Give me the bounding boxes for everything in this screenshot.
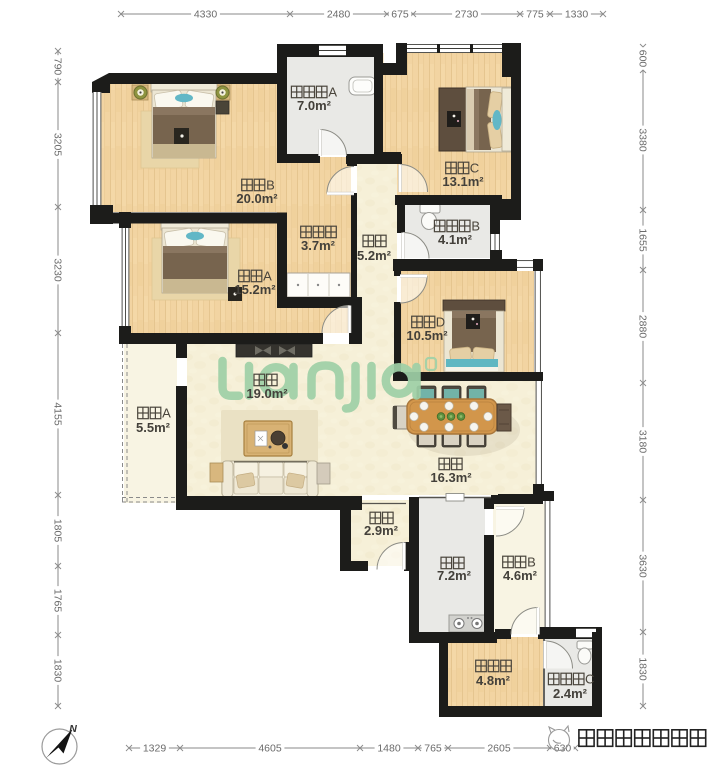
svg-text:2.4m²: 2.4m² [553,686,588,701]
svg-text:16.3m²: 16.3m² [430,470,472,485]
svg-text:3380: 3380 [637,128,649,152]
svg-text:3230: 3230 [52,258,64,282]
svg-text:4.8m²: 4.8m² [476,673,511,688]
svg-text:2730: 2730 [455,9,479,21]
svg-text:13.1m²: 13.1m² [442,174,484,189]
svg-text:1830: 1830 [637,657,649,681]
svg-text:N: N [69,723,77,735]
svg-text:1480: 1480 [377,743,401,755]
svg-text:3.7m²: 3.7m² [301,238,336,253]
svg-text:7.2m²: 7.2m² [437,568,472,583]
svg-text:2480: 2480 [327,9,351,21]
svg-text:15.2m²: 15.2m² [234,282,276,297]
svg-text:775: 775 [526,9,544,21]
svg-text:1330: 1330 [565,9,589,21]
svg-text:765: 765 [424,743,442,755]
svg-text:C: C [585,672,594,687]
svg-text:1329: 1329 [143,743,167,755]
svg-text:2880: 2880 [637,315,649,339]
svg-text:4.1m²: 4.1m² [438,232,473,247]
svg-text:5.2m²: 5.2m² [357,248,392,263]
svg-text:1805: 1805 [52,519,64,543]
svg-text:675: 675 [391,9,409,21]
svg-text:2.9m²: 2.9m² [364,523,399,538]
svg-text:5.5m²: 5.5m² [136,420,171,435]
svg-text:3205: 3205 [52,133,64,157]
svg-text:3180: 3180 [637,430,649,454]
svg-text:B: B [471,219,480,234]
svg-text:4.6m²: 4.6m² [503,568,538,583]
svg-text:4330: 4330 [194,9,218,21]
svg-text:1655: 1655 [637,228,649,252]
svg-text:3630: 3630 [637,554,649,578]
svg-text:4605: 4605 [258,743,282,755]
svg-text:19.0m²: 19.0m² [246,386,288,401]
svg-text:10.5m²: 10.5m² [406,328,448,343]
svg-text:790: 790 [52,58,64,76]
svg-text:4155: 4155 [52,402,64,426]
svg-text:2605: 2605 [487,743,511,755]
svg-text:A: A [162,406,171,421]
svg-text:20.0m²: 20.0m² [236,191,278,206]
svg-text:7.0m²: 7.0m² [297,98,332,113]
svg-text:1830: 1830 [52,659,64,683]
svg-text:1765: 1765 [52,589,64,613]
svg-text:600: 600 [637,50,649,68]
